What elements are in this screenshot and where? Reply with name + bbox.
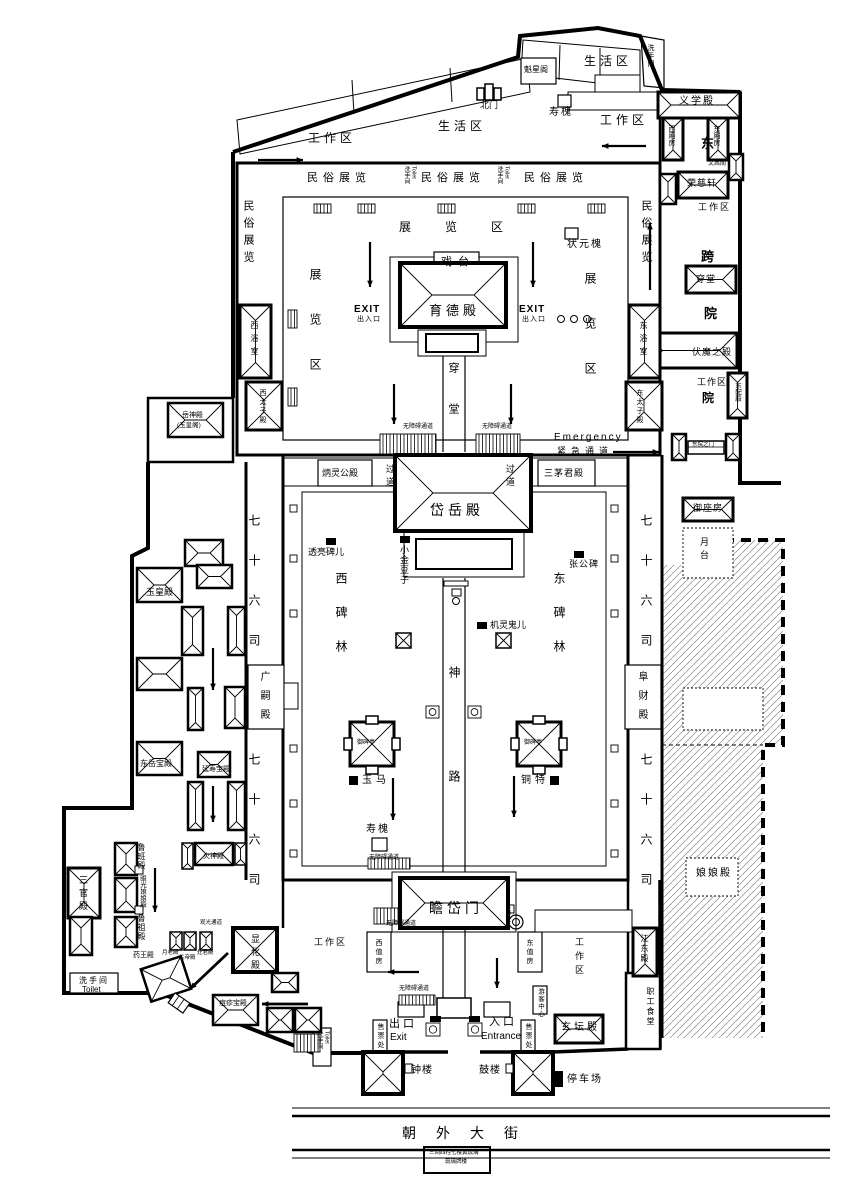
- building-roof: [70, 917, 92, 955]
- label-south-exit-cn: 出口: [389, 1019, 417, 1030]
- label-exhibit-zone-east: 展览区: [584, 272, 596, 407]
- restroom-booth-2: 洗手间 Toilet: [496, 166, 509, 184]
- label-work-area-1: 工作区: [308, 132, 356, 144]
- zaojundian-bldg: [200, 932, 212, 950]
- wall: [352, 80, 354, 114]
- label-accessible-2: 无障碍通道: [482, 424, 512, 430]
- pavilion-tab: [533, 716, 545, 724]
- building-roof: [228, 782, 245, 830]
- label-south-entrance-cn: 入口: [489, 1017, 517, 1028]
- label-north-gate: 北门: [480, 101, 498, 110]
- accessible-ramp: [399, 995, 435, 1005]
- building-roof: [185, 540, 223, 566]
- label-daiyuedian: 岱岳殿: [430, 503, 484, 517]
- label-xiaojindouzi: 小金豆子: [399, 545, 408, 585]
- label-douzhenbaodian: 痘疹宝殿: [219, 1000, 247, 1007]
- pavilion-tab: [392, 738, 400, 750]
- work-shed: [535, 910, 632, 932]
- building-roof: [272, 973, 298, 992]
- stele-marker: [574, 551, 584, 558]
- colonnade-bay: [290, 850, 297, 857]
- luzudian-bldg: [115, 917, 137, 947]
- colonnade-bay: [290, 610, 297, 617]
- stele-marker: [326, 538, 336, 545]
- structure: [416, 539, 512, 569]
- direction-arrow: [388, 969, 419, 975]
- building-roof: [197, 565, 232, 588]
- incense-burner-icon: [426, 1023, 440, 1036]
- east-boundary: [740, 92, 781, 483]
- entrance-gate: [437, 998, 471, 1018]
- label-bell-tower: 钟楼: [411, 1066, 433, 1076]
- stele-marker: [550, 776, 559, 785]
- label-rongcixuan: 荣慈轩: [687, 179, 717, 188]
- pavilion-tab: [559, 738, 567, 750]
- label-drum-tower: 鼓楼: [479, 1066, 501, 1076]
- label-work-area-3: 工作区: [698, 203, 731, 212]
- temple-site-map: 生活区 生活区 工作区 工作区 魁星阁 北门 寿槐 洗手间 义学殿 西厢房 东厢…: [0, 0, 848, 1200]
- label-xuantandian: 玄坛殿: [561, 1023, 600, 1033]
- label-dongyuebaodian: 东岳宝殿: [140, 760, 172, 768]
- label-dongpeidian: 东配殿: [733, 382, 740, 402]
- yuelaodian-bldg: [170, 932, 182, 950]
- building-roof: [726, 434, 740, 460]
- pavilion-tab: [511, 738, 519, 750]
- building-roof: [188, 688, 203, 730]
- stairs-icon: [358, 204, 375, 213]
- label-work-area-6: 工作区: [574, 937, 583, 979]
- colonnade-bay: [290, 555, 297, 562]
- label-passage-west: 过道: [385, 464, 394, 490]
- north-gate-icon: [494, 88, 501, 100]
- label-work-area-5: 工作区: [314, 938, 347, 947]
- label-spirit-way: 神路: [448, 666, 460, 874]
- label-char-yuan-1: 院: [704, 307, 717, 320]
- label-west-duty-room: 西值房: [375, 939, 382, 966]
- structure: [595, 75, 640, 93]
- zhonglou: [363, 1052, 403, 1094]
- wall: [450, 68, 452, 102]
- stele-marker: [430, 1016, 441, 1022]
- label-yudedian: 育德殿: [429, 304, 480, 317]
- label-staff-canteen: 职工食堂: [646, 987, 654, 1027]
- label-stele-pavilion-east: 御碑亭: [524, 740, 542, 746]
- wall: [559, 45, 560, 80]
- label-restroom-2-cn: 洗手间: [496, 166, 502, 184]
- label-binglinggongdian: 炳灵公殿: [322, 469, 358, 478]
- label-fucaidian: 阜财殿: [636, 671, 646, 728]
- label-exit-east-en: EXIT: [519, 305, 545, 315]
- label-exit-east-cn: 出入口: [522, 316, 546, 323]
- south-wall: [553, 1049, 628, 1052]
- entrance-wing: [484, 1002, 510, 1017]
- label-parking: 停车场: [567, 1075, 603, 1085]
- label-bronze-mule: 铜特: [521, 776, 549, 786]
- building-roof: [182, 607, 203, 655]
- wenchangge-pavilion: [729, 154, 743, 180]
- label-niangniangdian: 娘娘殿: [696, 869, 732, 879]
- structure: [284, 683, 298, 709]
- label-living-area-2: 生活区: [438, 120, 486, 132]
- colonnade-bay: [611, 745, 618, 752]
- restroom-booth-south: 洗手间 Toilet: [316, 1031, 329, 1049]
- label-emergency-en: Emergency: [554, 433, 623, 443]
- label-restroom-sw-cn: 洗手间: [79, 977, 109, 985]
- label-touliangbeir: 透亮碑儿: [308, 548, 344, 557]
- label-east-duty-room: 东值房: [526, 939, 533, 966]
- label-restroom-s-cn: 洗手间: [316, 1031, 322, 1049]
- structure: [568, 92, 658, 110]
- stairs-icon: [438, 204, 455, 213]
- label-south-exit-en: Exit: [390, 1033, 407, 1043]
- building-roof: [660, 174, 676, 204]
- colonnade-bay: [611, 800, 618, 807]
- label-accessible-3: 无障碍通道: [369, 855, 399, 861]
- label-work-area-4: 工作区: [697, 378, 727, 387]
- incense-burner-icon: [426, 706, 439, 718]
- label-folk-exhibit-east-wall: 民俗展览: [640, 200, 651, 268]
- direction-arrow: [262, 1001, 308, 1007]
- label-folk-exhibit-1: 民俗展览: [307, 173, 371, 184]
- label-restroom-1-cn: 洗手间: [403, 166, 409, 184]
- stele-marker: [477, 622, 487, 629]
- building-roof: [267, 1008, 293, 1032]
- restroom-booth-1: 洗手间 Toilet: [403, 166, 416, 184]
- label-visitor-center: 游客中心: [536, 988, 543, 1018]
- label-folk-exhibit-3: 民俗展览: [524, 173, 588, 184]
- label-emergency-cn: 紧急通道: [557, 447, 613, 456]
- north-gate-icon: [485, 84, 493, 100]
- label-yuhuangge: (玉皇阁): [177, 423, 201, 430]
- pavilion-tab: [344, 738, 352, 750]
- colonnade-bay: [611, 555, 618, 562]
- colonnade-bay: [290, 745, 297, 752]
- label-longevity-locust-north: 寿槐: [549, 108, 573, 118]
- label-char-kua: 跨: [701, 250, 714, 263]
- label-east-side-room: 东厢房: [713, 125, 720, 146]
- label-luzudian: 鲁祖殿: [137, 914, 145, 941]
- label-living-area-1: 生活区: [584, 55, 632, 67]
- yanshoubaodian: [198, 752, 230, 777]
- building-roof: [235, 843, 246, 865]
- yanguangdian-bldg: [115, 878, 137, 912]
- label-south-entrance-en: Entrance: [481, 1032, 521, 1042]
- building-roof: [396, 633, 411, 648]
- direction-arrow: [152, 868, 158, 912]
- label-east-bathhouse: 东浴室: [639, 321, 647, 360]
- label-accessible-1: 无障碍通道: [403, 424, 433, 430]
- label-restroom-2-en: Toilet: [503, 166, 509, 184]
- stairs-icon: [314, 204, 331, 213]
- label-chuantang-axis: 穿堂: [447, 362, 458, 444]
- label-jilingguir: 机灵鬼儿: [490, 621, 526, 630]
- label-yuhuangdian: 玉皇殿: [146, 588, 173, 597]
- pavilion-tab: [366, 766, 378, 774]
- label-west-prince-hall: 西太子殿: [259, 389, 266, 425]
- building-roof: [496, 633, 511, 648]
- label-76-departments-wu: 七十六司: [248, 514, 260, 674]
- gulou: [513, 1052, 553, 1094]
- label-wenchangge: 文昌阁: [708, 161, 726, 167]
- accessible-ramp: [380, 434, 436, 454]
- direction-arrow: [210, 786, 216, 822]
- label-opera-stage: 戏台: [441, 257, 475, 268]
- altar-icon: [452, 589, 461, 596]
- label-east-yard-gate: 东院之门: [692, 443, 714, 449]
- incense-burner-icon: [468, 706, 481, 718]
- label-restroom-1-en: Toilet: [410, 166, 416, 184]
- label-exit-west-en: EXIT: [354, 305, 380, 315]
- label-zhanggongbei: 张公碑: [569, 560, 599, 569]
- label-yuzuofang: 御座房: [693, 504, 723, 513]
- label-zhandaimen: 瞻岱门: [429, 901, 483, 915]
- stele-marker: [349, 776, 358, 785]
- structure: [506, 1064, 513, 1073]
- building-roof: [188, 782, 203, 830]
- label-pailou-line2: 琉璃牌楼: [445, 1160, 467, 1166]
- label-ticket-office-east: 售票处: [525, 1023, 532, 1050]
- label-76-departments-el: 七十六司: [640, 753, 652, 913]
- label-exit-west-cn: 出入口: [357, 316, 381, 323]
- label-fumozhidian: 伏魔之殿: [692, 348, 732, 357]
- stairs-icon: [288, 388, 297, 406]
- label-passage-east: 过道: [505, 464, 514, 490]
- stairs-icon: [288, 310, 297, 328]
- label-xianhuadian: 显化殿: [250, 934, 259, 973]
- yueshendian: [168, 403, 223, 437]
- label-jiangdongdian: 江东殿: [640, 934, 648, 964]
- dongtaizidian: [626, 382, 662, 430]
- building-roof: [672, 434, 686, 460]
- label-exhibit-zone-west: 展览区: [309, 268, 321, 403]
- altar-icon: [444, 581, 468, 586]
- label-east-stele-forest: 东碑林: [553, 572, 565, 674]
- label-chuantang-building: 穿堂: [696, 275, 716, 284]
- guandidian-bldg: [184, 932, 196, 950]
- label-ticket-office-west: 售票处: [377, 1023, 384, 1050]
- label-zaojundian: 灶君殿: [197, 951, 214, 957]
- colonnade-bay: [611, 850, 618, 857]
- label-guangsidian: 广嗣殿: [258, 671, 268, 728]
- label-char-yuan-2: 院: [702, 392, 714, 404]
- label-yaowangdian: 药王殿: [133, 952, 154, 959]
- structure: [426, 334, 478, 352]
- building-roof: [182, 843, 193, 869]
- label-char-east: 东: [701, 137, 714, 150]
- colonnade-bay: [290, 800, 297, 807]
- tree-marker: [558, 95, 571, 107]
- label-yixuedian: 义学殿: [679, 97, 715, 107]
- colonnade-bay: [611, 610, 618, 617]
- tree-marker: [372, 838, 387, 851]
- building-roof: [137, 658, 182, 690]
- direction-arrow: [602, 143, 646, 149]
- label-yanshoubaodian: 延寿宝殿: [202, 766, 230, 773]
- label-jade-horse: 玉马: [362, 776, 390, 786]
- label-west-bathhouse: 西浴室: [250, 321, 258, 360]
- label-guandidian: 关帝殿: [179, 956, 196, 962]
- stairs-icon: [588, 204, 605, 213]
- stairs-icon: [518, 204, 535, 213]
- label-restroom-sw-en: Toilet: [82, 986, 101, 994]
- tree-marker: [565, 228, 578, 239]
- yaowangdian: [141, 956, 191, 1001]
- label-folk-exhibit-west-wall: 民俗展览: [242, 200, 253, 268]
- direction-arrow: [210, 648, 216, 690]
- label-accessible-5: 无障碍通道: [399, 986, 429, 992]
- label-moon-terrace: 月台: [699, 537, 708, 563]
- colonnade-bay: [290, 505, 297, 512]
- label-east-prince-hall: 东太子殿: [636, 389, 643, 425]
- label-kuixingge: 魁星阁: [524, 66, 548, 74]
- label-restroom-northeast: 洗手间: [647, 44, 654, 68]
- label-exhibit-zone-top: 展览区: [399, 221, 537, 233]
- label-chaowai-street: 朝外大街: [402, 1126, 538, 1140]
- direction-arrow: [494, 958, 500, 988]
- building-roof: [225, 687, 245, 728]
- north-gate-icon: [477, 88, 484, 100]
- building-roof: [228, 607, 245, 655]
- label-taipinggang: 太平缸: [504, 906, 510, 923]
- lubandian-bldg: [115, 843, 137, 875]
- label-folk-exhibit-2: 民俗展览: [421, 173, 485, 184]
- incense-burner-icon: [468, 1023, 482, 1036]
- label-sanguandian: 三官殿: [78, 875, 87, 914]
- label-yuelaodian: 月老殿: [162, 951, 179, 957]
- label-76-departments-eu: 七十六司: [640, 514, 652, 674]
- label-yueshendian: 岳神殿: [182, 412, 203, 419]
- stele-marker: [469, 1016, 480, 1022]
- colonnade-bay: [611, 505, 618, 512]
- label-sight-path: 观光通道: [200, 921, 222, 927]
- label-restroom-s-en: Toilet: [323, 1031, 329, 1049]
- label-sanmaojundian: 三茅君殿: [544, 469, 584, 478]
- label-work-area-2: 工作区: [600, 114, 648, 126]
- label-pailou-line1: 三间四柱七楼黄琉璃: [429, 1151, 479, 1157]
- label-west-stele-forest: 西碑林: [335, 572, 347, 674]
- label-longevity-locust-south: 寿槐: [366, 825, 390, 835]
- label-lubandian: 鲁班殿: [137, 843, 145, 870]
- building-roof: [295, 1008, 321, 1032]
- pavilion-tab: [366, 716, 378, 724]
- label-yanguangdian: 眼光娘娘殿: [138, 875, 145, 908]
- label-stele-pavilion-west: 御碑亭: [357, 740, 375, 746]
- label-west-side-room: 西厢房: [668, 125, 675, 146]
- label-76-departments-wl: 七十六司: [248, 753, 260, 913]
- stele-marker: [400, 536, 410, 543]
- label-huoshendian: 火神殿: [203, 853, 224, 860]
- accessible-ramp: [476, 434, 520, 454]
- vacant-block: [683, 688, 763, 730]
- pavilion-tab: [533, 766, 545, 774]
- label-accessible-4: 无障碍通道: [386, 921, 416, 927]
- label-zhuangyuan-locust: 状元槐: [567, 240, 603, 250]
